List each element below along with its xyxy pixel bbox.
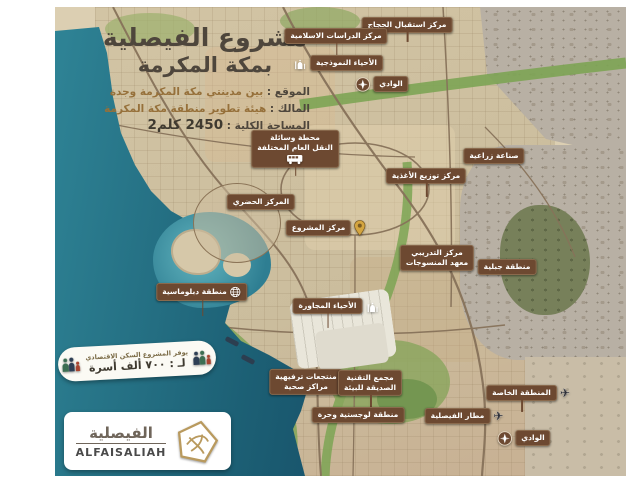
project-title-block: مشروع الفيصلية بمكة المكرمة الموقع : بين… [100,24,310,135]
info-owner: المالك : هيئة تطوير منطقة مكة المكرمة [100,101,310,118]
logo-text: الفيصلية ALFAISALIAH [76,424,167,459]
info-owner-value: هيئة تطوير منطقة مكة المكرمة [104,103,266,115]
project-info: الموقع : بين مدينتي مكة المكرمة وجدة الم… [100,84,310,135]
project-subtitle: بمكة المكرمة [100,53,310,77]
info-location-value: بين مدينتي مكة المكرمة وجدة [110,86,263,98]
alfaisaliah-logo: الفيصلية ALFAISALIAH [64,412,231,470]
project-map-poster: مشروع الفيصلية بمكة المكرمة الموقع : بين… [0,0,636,483]
project-title: مشروع الفيصلية [100,24,310,51]
family-icon [60,356,82,373]
logo-arabic-name: الفيصلية [76,424,167,444]
info-location-label: الموقع : [267,86,310,98]
alfaisaliah-emblem-icon [175,419,219,463]
logo-latin-name: ALFAISALIAH [76,446,167,459]
info-total-area: المساحة الكلية : 2450 كلم2 [100,117,310,135]
info-total-area-label: المساحة الكلية : [227,120,310,132]
info-total-area-value: 2450 كلم2 [147,117,223,133]
family-icon [192,349,214,366]
info-location: الموقع : بين مدينتي مكة المكرمة وجدة [100,84,310,101]
urban-center-ring-road [193,183,281,263]
info-owner-label: المالك : [270,103,310,115]
